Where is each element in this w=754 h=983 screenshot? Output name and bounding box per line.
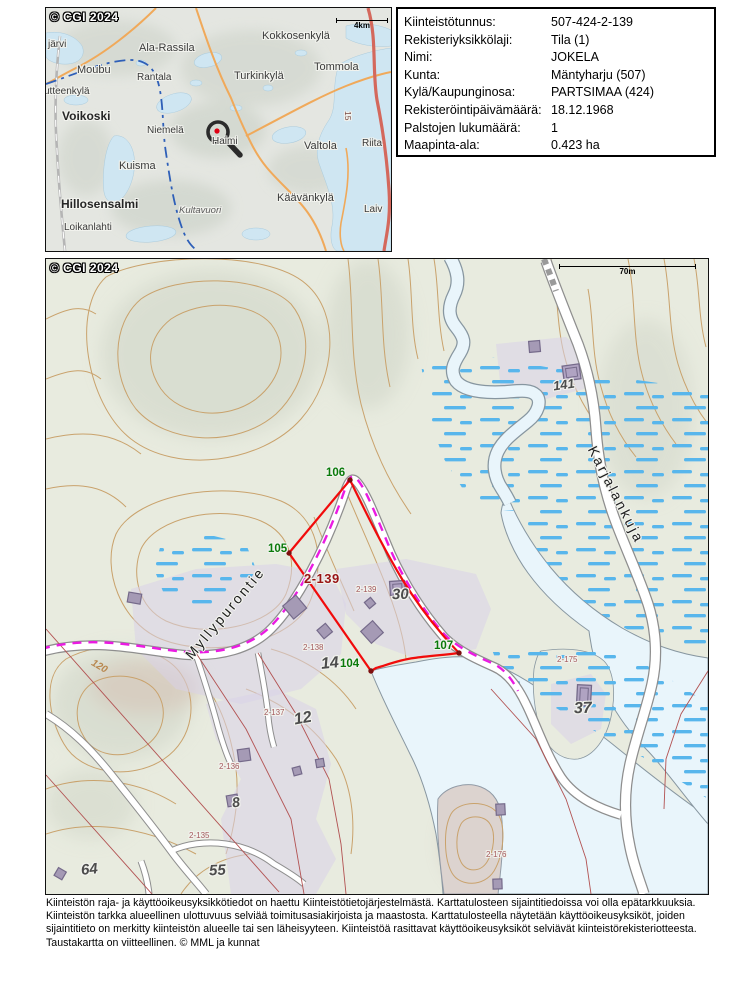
map-label: 106 <box>326 467 345 479</box>
map-label: 14 <box>320 654 340 674</box>
scalebar-label: 70m <box>559 267 696 276</box>
map-label: 37 <box>574 700 592 719</box>
info-row: Kunta: Mäntyharju (507) <box>404 67 714 85</box>
map-label: 55 <box>209 862 227 880</box>
map-label: 15 <box>343 111 353 120</box>
map-label: 107 <box>434 640 453 652</box>
map-label: Laiv <box>364 204 382 215</box>
info-value: 18.12.1968 <box>551 102 714 120</box>
map-label: Niemelä <box>147 125 184 136</box>
map-label: Kokkosenkylä <box>262 30 330 42</box>
map-label: 2-176 <box>486 850 506 859</box>
info-row: Rekisteriyksikkölaji: Tila (1) <box>404 32 714 50</box>
map-label: Kuisma <box>119 160 156 172</box>
scalebar-label: 4km <box>336 21 388 30</box>
map-label: 141 <box>552 376 576 394</box>
scalebar-line <box>336 20 388 21</box>
info-row: Kiinteistötunnus: 507-424-2-139 <box>404 14 714 32</box>
map-label: utteenkylä <box>45 86 90 97</box>
info-label: Palstojen lukumäärä: <box>404 120 551 138</box>
disclaimer-line: Taustakartta on viitteellinen. © MML ja … <box>46 937 736 950</box>
info-row: Nimi: JOKELA <box>404 49 714 67</box>
peninsula-tint <box>437 785 502 894</box>
disclaimer-line: Kiinteistön raja- ja käyttöoikeusyksikkö… <box>46 897 736 910</box>
info-label: Kunta: <box>404 67 551 85</box>
disclaimer-line: sijaintitieto on merkitty kiinteistön al… <box>46 923 736 936</box>
info-value: Tila (1) <box>551 32 714 50</box>
info-label: Nimi: <box>404 49 551 67</box>
info-label: Rekisteriyksikkölaji: <box>404 32 551 50</box>
property-printout-page: järviAla-RassilaKokkosenkyläMoubuRantala… <box>0 0 754 983</box>
cadastral-map-graphic <box>46 259 708 894</box>
overview-copyright: © CGI 2024 <box>50 10 119 24</box>
info-label: Kylä/Kaupunginosa: <box>404 84 551 102</box>
target-location-dot <box>214 128 219 133</box>
map-label: 104 <box>340 658 359 670</box>
map-label: 64 <box>80 860 98 879</box>
info-value: 0.423 ha <box>551 137 714 155</box>
map-label: Turkinkylä <box>234 70 284 82</box>
info-label: Maapinta-ala: <box>404 137 551 155</box>
overview-map: järviAla-RassilaKokkosenkyläMoubuRantala… <box>45 7 392 252</box>
map-label: Moubu <box>77 64 111 76</box>
map-label: Loikanlahti <box>64 222 112 233</box>
disclaimer-text: Kiinteistön raja- ja käyttöoikeusyksikkö… <box>46 897 736 950</box>
map-label: 30 <box>392 586 409 604</box>
overview-scalebar: 4km <box>336 20 388 30</box>
map-label: Haimi <box>212 136 238 147</box>
cadastral-copyright: © CGI 2024 <box>50 261 119 275</box>
disclaimer-line: Kiinteistön tarkka alueellinen ulottuvuu… <box>46 910 736 923</box>
map-label: Rantala <box>137 72 171 83</box>
info-row: Palstojen lukumäärä: 1 <box>404 120 714 138</box>
cadastral-map: 1051061041072-1392-1392-1382-1372-1362-1… <box>45 258 709 895</box>
map-label: Riita <box>362 138 382 149</box>
map-label: 2-135 <box>189 831 209 840</box>
property-info-panel: Kiinteistötunnus: 507-424-2-139 Rekister… <box>396 7 716 157</box>
info-label: Kiinteistötunnus: <box>404 14 551 32</box>
map-label: 105 <box>268 543 287 555</box>
info-row: Rekisteröintipäivämäärä: 18.12.1968 <box>404 102 714 120</box>
map-label: järvi <box>48 39 66 50</box>
map-label: 2-139 <box>304 571 340 586</box>
map-label: Käävänkylä <box>277 192 334 204</box>
info-value: 1 <box>551 120 714 138</box>
info-label: Rekisteröintipäivämäärä: <box>404 102 551 120</box>
map-label: Kultavuori <box>179 205 221 216</box>
info-value: 507-424-2-139 <box>551 14 714 32</box>
info-row: Kylä/Kaupunginosa: PARTSIMAA (424) <box>404 84 714 102</box>
cadastral-scalebar: 70m <box>559 266 696 276</box>
info-value: Mäntyharju (507) <box>551 67 714 85</box>
map-label: 2-138 <box>303 643 323 652</box>
map-label: Ala-Rassila <box>139 42 195 54</box>
info-value: PARTSIMAA (424) <box>551 84 714 102</box>
map-label: 2-137 <box>264 708 284 717</box>
map-label: Voikoski <box>62 109 110 123</box>
map-label: Hillosensalmi <box>61 197 138 211</box>
map-label: 2-136 <box>219 762 239 771</box>
map-label: Tommola <box>314 61 359 73</box>
map-label: Valtola <box>304 140 337 152</box>
info-row: Maapinta-ala: 0.423 ha <box>404 137 714 155</box>
map-label: 12 <box>293 709 314 730</box>
map-label: 2-139 <box>356 585 376 594</box>
map-label: 2-175 <box>557 655 577 664</box>
scalebar-line <box>559 266 696 267</box>
info-value: JOKELA <box>551 49 714 67</box>
